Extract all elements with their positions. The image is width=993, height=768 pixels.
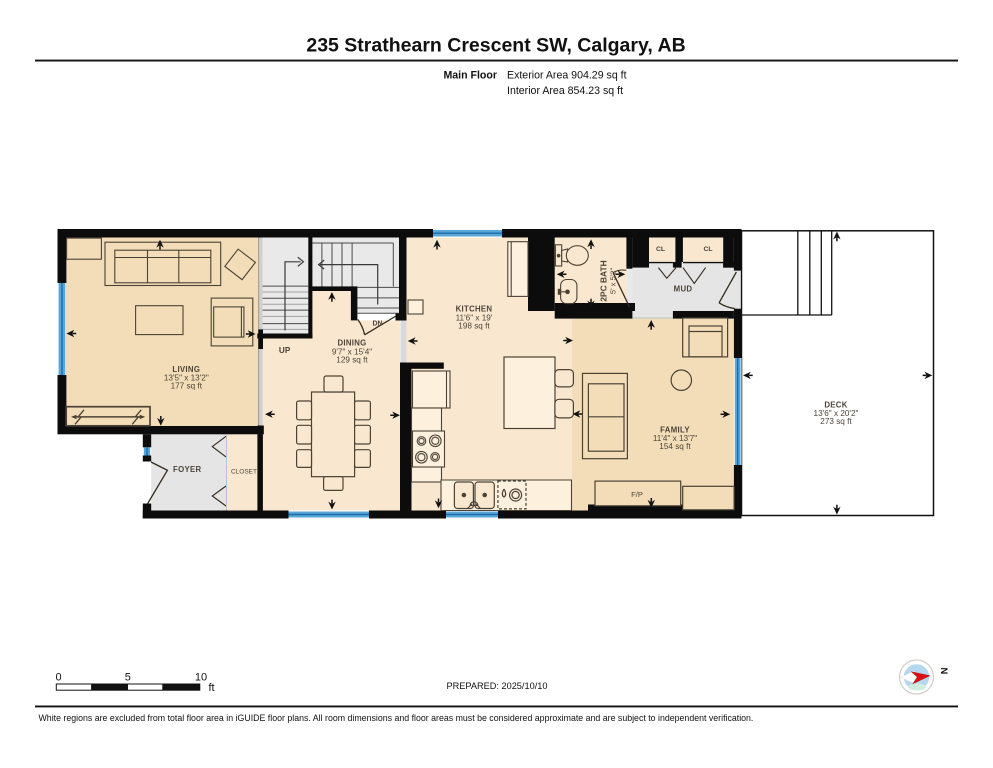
svg-text:CL: CL bbox=[703, 246, 712, 253]
svg-text:129 sq ft: 129 sq ft bbox=[336, 355, 368, 364]
svg-text:Main Floor: Main Floor bbox=[443, 70, 497, 82]
svg-text:10: 10 bbox=[195, 672, 207, 684]
svg-text:5: 5 bbox=[125, 672, 131, 684]
svg-text:5' x 5'2": 5' x 5'2" bbox=[608, 268, 617, 295]
svg-text:UP: UP bbox=[279, 346, 291, 355]
svg-text:154 sq ft: 154 sq ft bbox=[659, 442, 691, 451]
svg-text:F/P: F/P bbox=[631, 490, 643, 499]
svg-text:FAMILY: FAMILY bbox=[660, 425, 690, 434]
svg-text:198 sq ft: 198 sq ft bbox=[458, 321, 490, 330]
svg-text:CLOSET: CLOSET bbox=[231, 469, 257, 476]
svg-text:ft: ft bbox=[209, 682, 215, 694]
svg-text:FOYER: FOYER bbox=[173, 465, 201, 474]
svg-text:MUD: MUD bbox=[674, 285, 693, 294]
svg-text:2PC BATH: 2PC BATH bbox=[599, 260, 609, 301]
svg-text:273 sq ft: 273 sq ft bbox=[820, 417, 852, 426]
svg-text:CL: CL bbox=[656, 246, 665, 253]
svg-text:0: 0 bbox=[55, 672, 61, 684]
svg-text:Interior Area 854.23 sq ft: Interior Area 854.23 sq ft bbox=[507, 85, 623, 97]
svg-text:PREPARED: 2025/10/10: PREPARED: 2025/10/10 bbox=[447, 681, 548, 691]
svg-text:177 sq ft: 177 sq ft bbox=[171, 381, 203, 390]
svg-text:Exterior Area 904.29 sq ft: Exterior Area 904.29 sq ft bbox=[507, 70, 627, 82]
svg-text:DN: DN bbox=[372, 321, 382, 328]
svg-text:235 Strathearn Crescent SW, Ca: 235 Strathearn Crescent SW, Calgary, AB bbox=[306, 35, 685, 57]
svg-text:DINING: DINING bbox=[337, 339, 366, 348]
svg-text:KITCHEN: KITCHEN bbox=[456, 305, 493, 314]
svg-text:N: N bbox=[939, 668, 949, 675]
svg-text:White regions are excluded fro: White regions are excluded from total fl… bbox=[39, 713, 754, 723]
